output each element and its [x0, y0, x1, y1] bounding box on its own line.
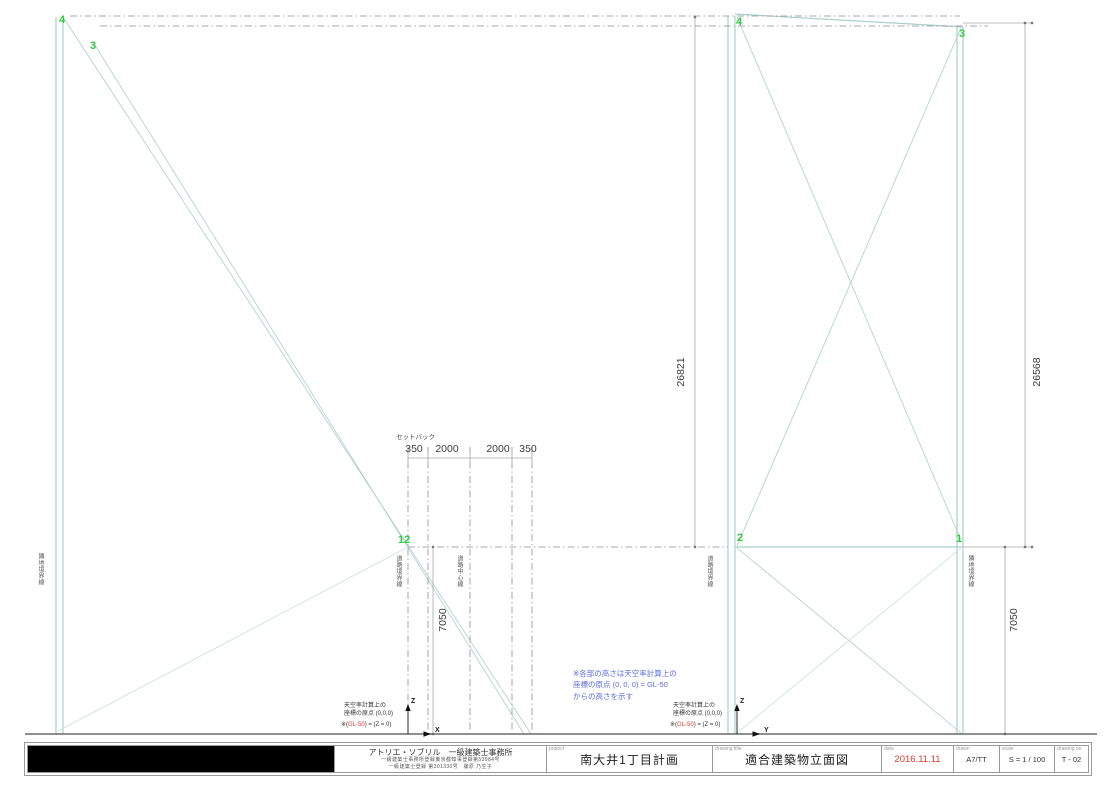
- height-note-line1: ※各部の高さは天空率計算上の: [573, 668, 677, 679]
- boundary-label-neighbor-left: 隣地境界線: [37, 553, 43, 586]
- right-elevation-lines: [728, 14, 963, 734]
- title-block-inner: アトリエ・ソブリル 一級建築士事務所 一級建築士事務所登録東京都知事登録第539…: [27, 745, 1089, 773]
- origin-note-right-line1: 天空率計算上の: [673, 703, 722, 711]
- height-reference-note: ※各部の高さは天空率計算上の 座標の原点 (0, 0, 0) = GL-50 か…: [573, 668, 677, 702]
- boundary-label-neighbor-right: 隣地境界線: [967, 555, 973, 588]
- dim-setback-3: 2000: [486, 443, 510, 455]
- dim-depth-left: 7050: [437, 608, 449, 632]
- redacted-box: [28, 746, 335, 772]
- origin-note-right: 天空率計算上の 座標の原点 (0,0,0): [673, 703, 722, 718]
- left-elevation-lines: [56, 17, 531, 734]
- drawn-cell: drawn A7/TT: [954, 746, 1000, 772]
- axis-z-label-right: Z: [740, 698, 744, 705]
- origin-note-left-line2: 座標の原点 (0,0,0): [344, 711, 393, 719]
- architect-registration-2: 一級建築士登録 第301330号 篠原 乃生子: [389, 764, 493, 771]
- point-1: 1: [956, 533, 962, 545]
- boundary-dash-lines: [70, 16, 988, 732]
- elevation-drawing-sheet: 4 3 12 4 3 2 1 26821 26568 7050 7050 350…: [0, 0, 1120, 790]
- dimension-end-markers: [432, 16, 1033, 735]
- dim-height-left: 26821: [675, 357, 687, 386]
- drawing-number-label: drawing no: [1057, 747, 1081, 752]
- elevation-linework: 4 3 12 4 3 2 1 26821 26568 7050 7050 350…: [0, 0, 1120, 790]
- axis-z-label-left: Z: [411, 698, 415, 705]
- setback-caption: セットバック: [396, 431, 435, 441]
- project-name: 南大井1丁目計画: [580, 751, 679, 768]
- origin-gl-note-right: ※(GL-50) = (Z = 0): [670, 721, 720, 728]
- architect-cell: アトリエ・ソブリル 一級建築士事務所 一級建築士事務所登録東京都知事登録第539…: [335, 746, 547, 772]
- dim-setback-2: 2000: [435, 443, 459, 455]
- scale-value: S = 1 / 100: [1009, 755, 1046, 764]
- drawing-number-value: T - 02: [1062, 755, 1081, 764]
- origin-note-right-line2: 座標の原点 (0,0,0): [673, 711, 722, 719]
- dim-depth-right: 7050: [1008, 608, 1020, 632]
- boundary-label-road-center: 道路中心線: [456, 555, 462, 588]
- dimension-texts: 26821 26568 7050 7050 350 2000 2000 350: [405, 357, 1043, 631]
- origin-note-left-line1: 天空率計算上の: [344, 703, 393, 711]
- axis-x-label: X: [435, 727, 440, 734]
- boundary-label-road-right: 道路境界線: [706, 555, 712, 588]
- architect-name: アトリエ・ソブリル 一級建築士事務所: [369, 748, 513, 758]
- point-3-left: 3: [90, 40, 96, 52]
- date-label: date: [884, 747, 894, 752]
- origin-note-left: 天空率計算上の 座標の原点 (0,0,0): [344, 703, 393, 718]
- scale-label: scale: [1002, 747, 1014, 752]
- date-cell: date 2016.11.11: [882, 746, 954, 772]
- point-12: 12: [398, 534, 410, 546]
- dim-height-right: 26568: [1031, 357, 1043, 386]
- axis-y-label: Y: [764, 727, 769, 734]
- point-4-right: 4: [736, 16, 743, 28]
- point-3-right: 3: [959, 28, 965, 40]
- title-block: アトリエ・ソブリル 一級建築士事務所 一級建築士事務所登録東京都知事登録第539…: [24, 742, 1092, 776]
- point-2: 2: [737, 532, 743, 544]
- drawing-title-cell: drawing title 適合建築物立面図: [713, 746, 882, 772]
- scale-cell: scale S = 1 / 100: [1000, 746, 1055, 772]
- drawing-number-cell: drawing no T - 02: [1055, 746, 1088, 772]
- height-note-line2: 座標の原点 (0, 0, 0) = GL-50: [573, 679, 677, 690]
- project-label: project: [549, 747, 564, 752]
- date-value: 2016.11.11: [894, 754, 940, 765]
- dim-setback-1: 350: [405, 443, 423, 455]
- drawn-value: A7/TT: [966, 755, 986, 764]
- dimension-lines: [408, 17, 1032, 734]
- drawing-title-label: drawing title: [715, 747, 742, 752]
- project-cell: project 南大井1丁目計画: [547, 746, 713, 772]
- origin-gl-note-left: ※(GL-50) = (Z = 0): [341, 721, 391, 728]
- drawn-label: drawn: [956, 747, 970, 752]
- drawing-title: 適合建築物立面図: [745, 751, 849, 768]
- height-note-line3: からの高さを示す: [573, 691, 677, 702]
- point-4-left: 4: [59, 14, 66, 26]
- boundary-label-road-left: 道路境界線: [395, 555, 401, 588]
- dim-setback-4: 350: [519, 443, 537, 455]
